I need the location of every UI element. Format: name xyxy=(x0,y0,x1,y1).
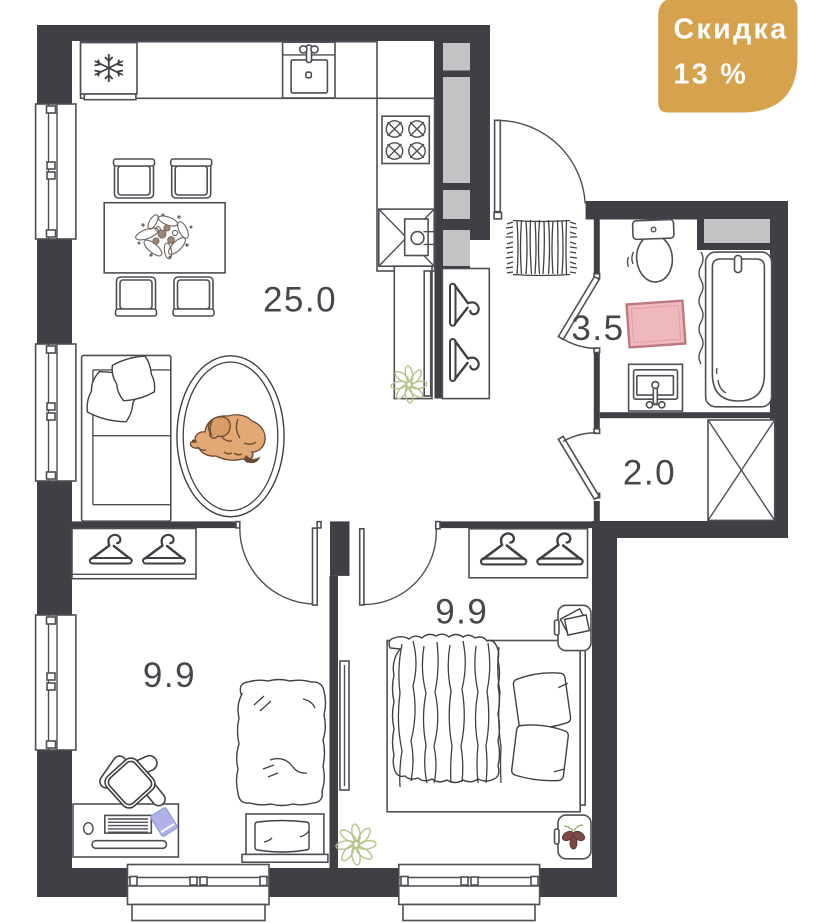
svg-text:2.0: 2.0 xyxy=(623,454,676,493)
svg-text:13 %: 13 % xyxy=(674,59,749,91)
svg-text:3.5: 3.5 xyxy=(571,309,624,348)
svg-text:9.9: 9.9 xyxy=(143,656,196,695)
svg-text:25.0: 25.0 xyxy=(263,281,337,320)
svg-text:9.9: 9.9 xyxy=(435,593,488,632)
svg-text:Скидка: Скидка xyxy=(674,14,789,46)
